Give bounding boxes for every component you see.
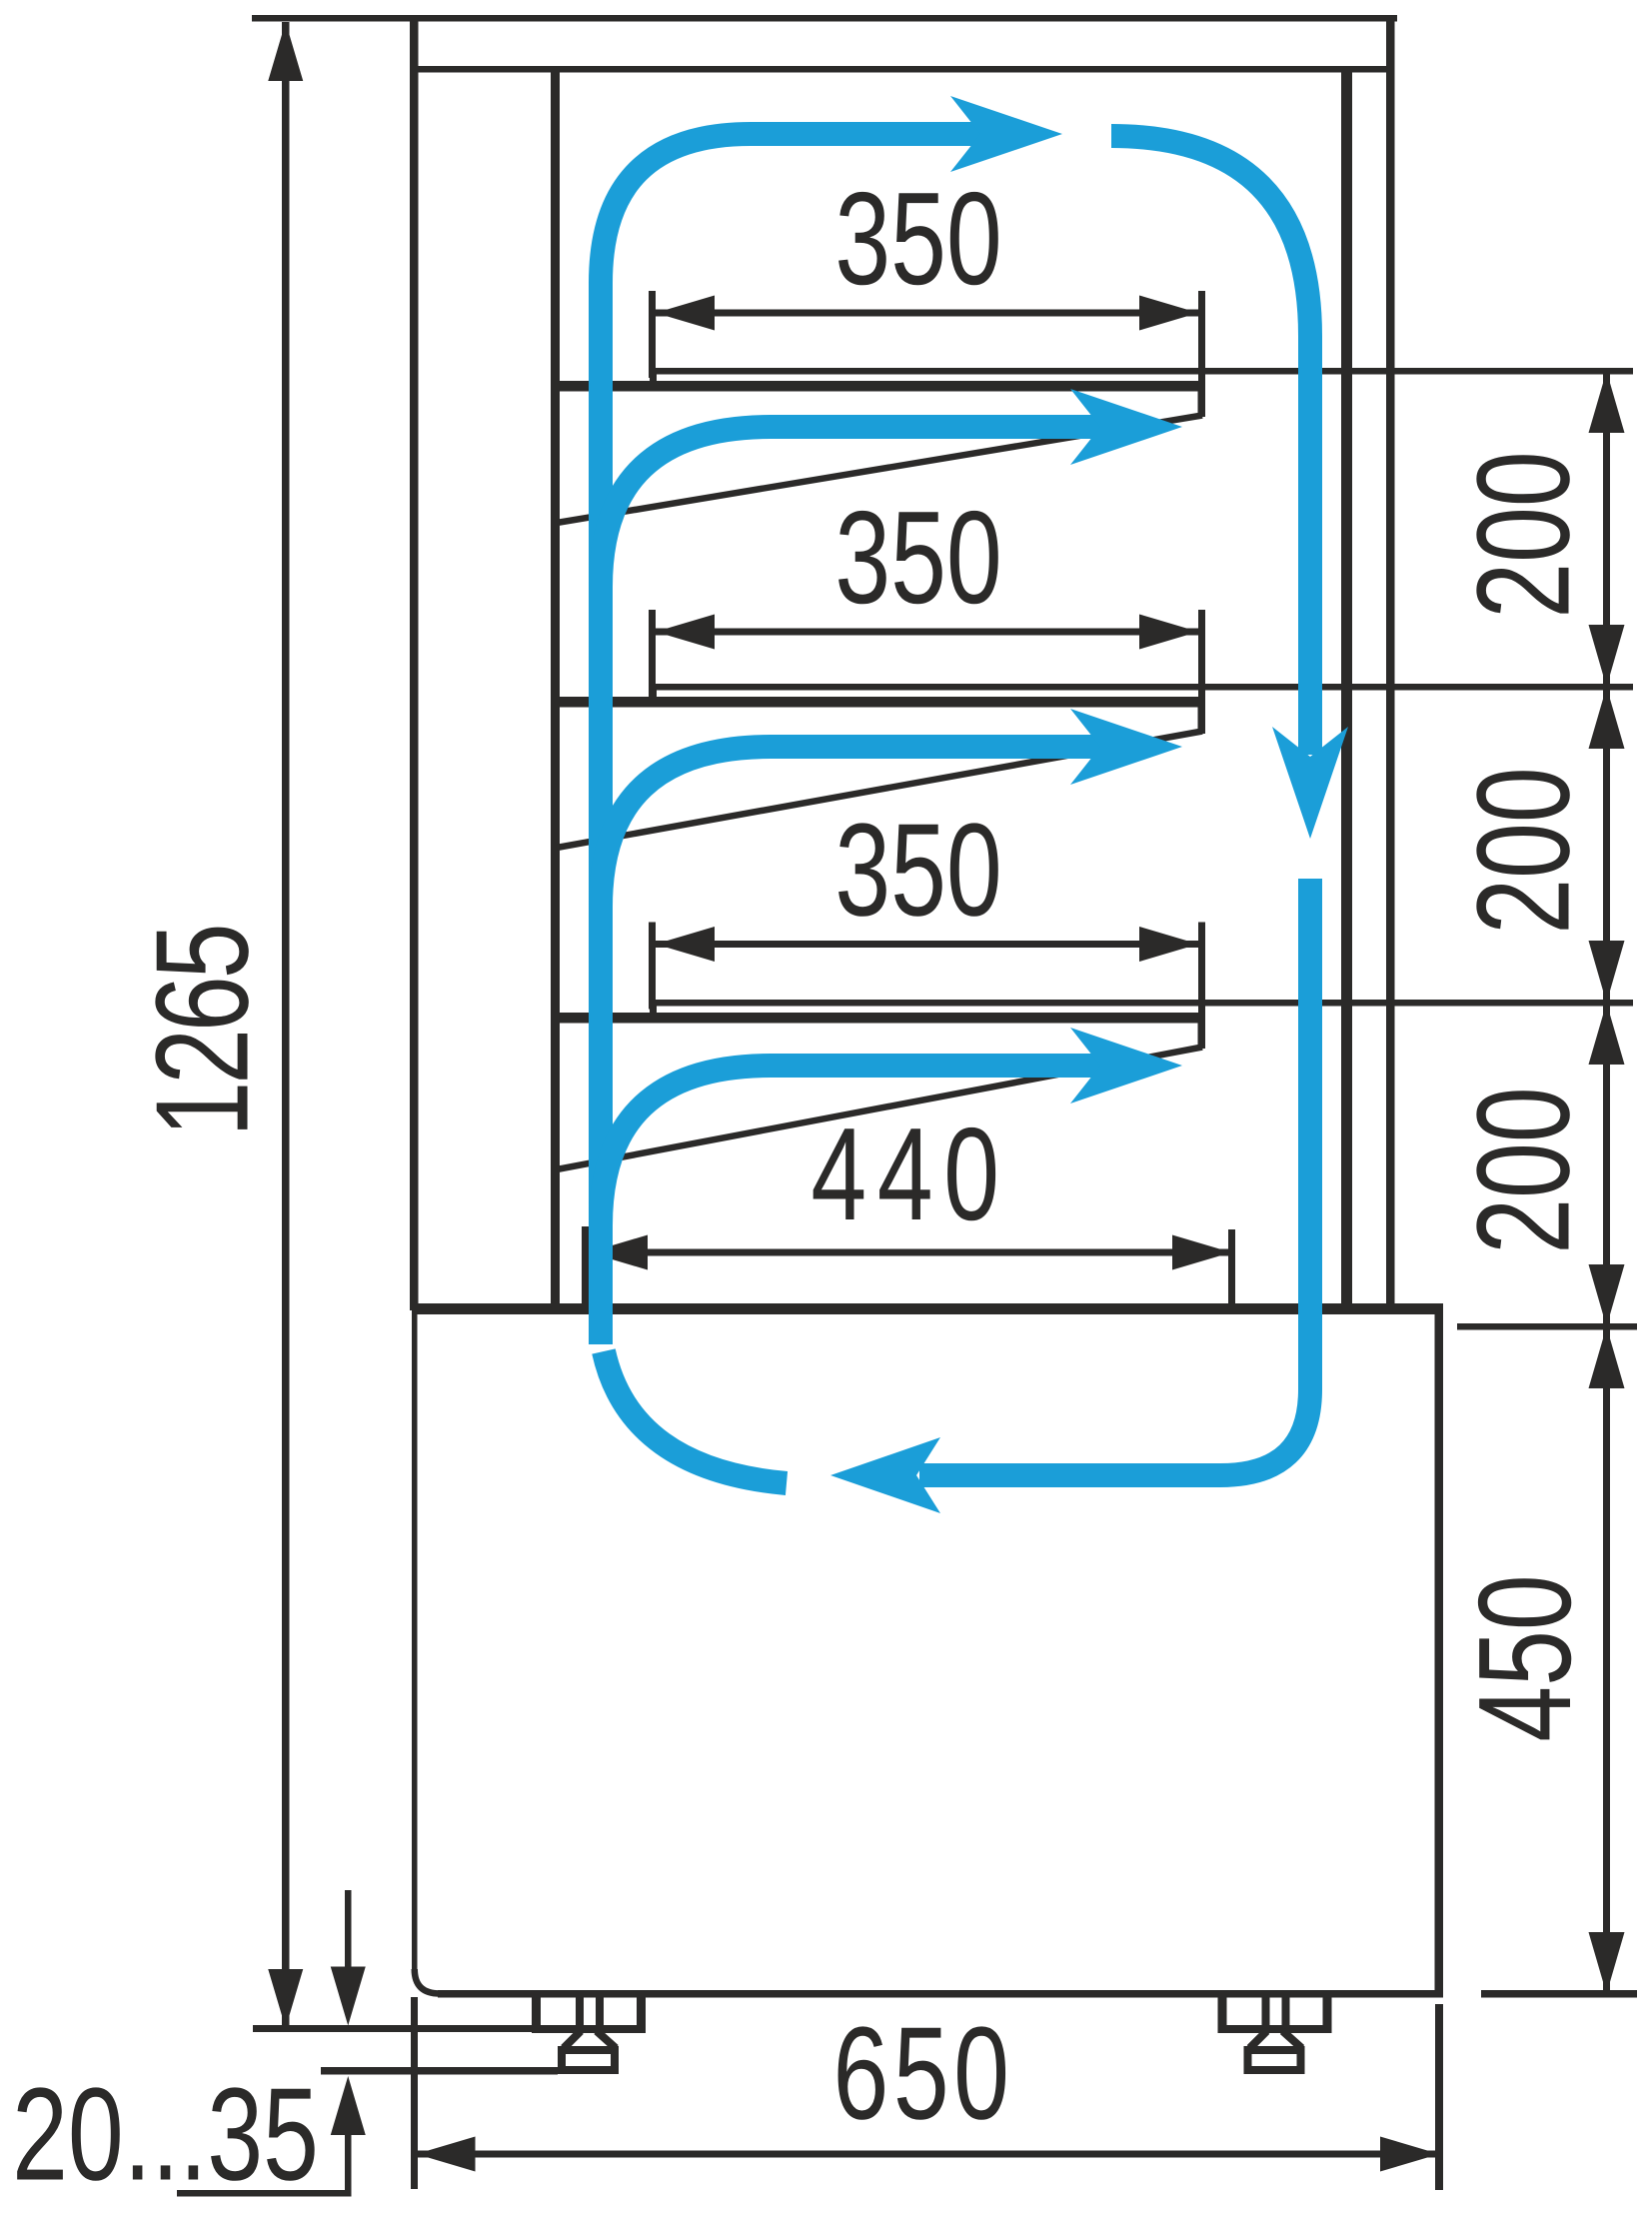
- svg-text:440: 440: [811, 1101, 1009, 1247]
- svg-text:20...35: 20...35: [12, 2060, 319, 2207]
- svg-text:350: 350: [834, 484, 1001, 631]
- svg-text:200: 200: [1449, 767, 1596, 934]
- svg-text:350: 350: [834, 796, 1001, 943]
- svg-text:650: 650: [832, 1999, 1013, 2146]
- svg-text:450: 450: [1451, 1574, 1598, 1741]
- svg-text:350: 350: [834, 165, 1001, 312]
- svg-text:1265: 1265: [128, 927, 275, 1137]
- svg-text:200: 200: [1449, 451, 1596, 618]
- svg-text:200: 200: [1449, 1087, 1596, 1253]
